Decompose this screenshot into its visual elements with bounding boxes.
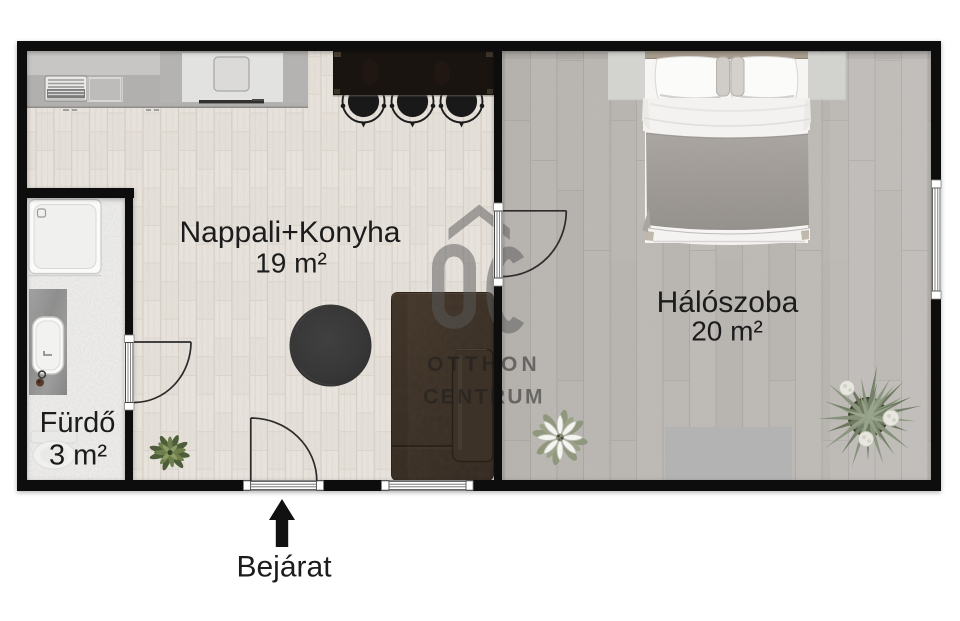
svg-text:OTTHON: OTTHON	[427, 353, 541, 376]
svg-text:3 m²: 3 m²	[49, 440, 107, 472]
svg-text:CENTRUM: CENTRUM	[423, 386, 545, 409]
svg-text:Bejárat: Bejárat	[236, 551, 332, 584]
svg-text:20 m²: 20 m²	[691, 316, 763, 347]
svg-text:Hálószoba: Hálószoba	[657, 286, 799, 319]
svg-text:Fürdő: Fürdő	[40, 407, 116, 439]
svg-text:19 m²: 19 m²	[255, 248, 327, 279]
svg-text:Nappali+Konyha: Nappali+Konyha	[179, 216, 400, 249]
